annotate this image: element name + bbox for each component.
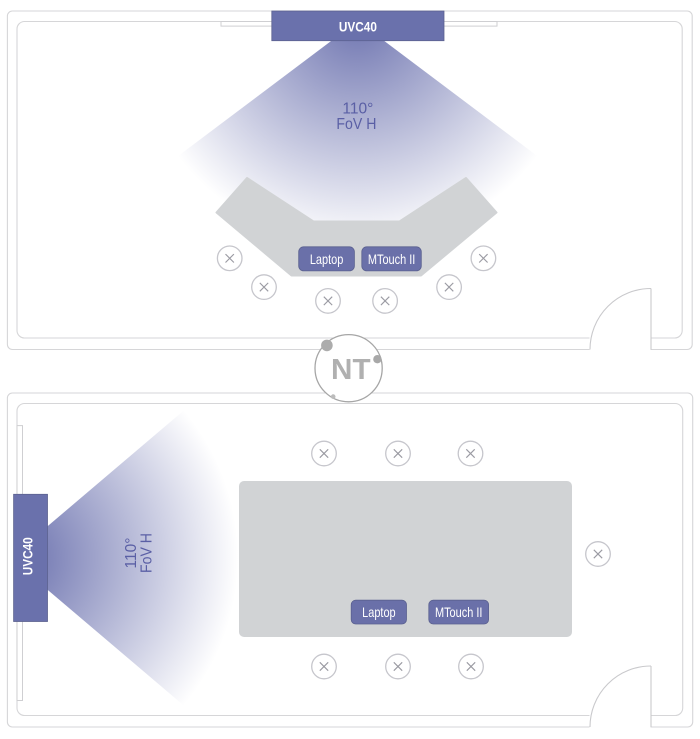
svg-text:FoV H: FoV H [138, 533, 155, 573]
svg-text:UVC40: UVC40 [339, 18, 377, 34]
svg-text:Laptop: Laptop [310, 251, 344, 267]
svg-text:Laptop: Laptop [362, 604, 396, 620]
svg-text:NT: NT [331, 354, 371, 386]
svg-text:UVC40: UVC40 [19, 537, 35, 575]
svg-text:110°: 110° [342, 100, 373, 117]
svg-text:MTouch II: MTouch II [368, 251, 416, 267]
svg-text:FoV H: FoV H [336, 116, 376, 133]
svg-text:MTouch II: MTouch II [435, 604, 483, 620]
svg-text:110°: 110° [123, 538, 140, 569]
